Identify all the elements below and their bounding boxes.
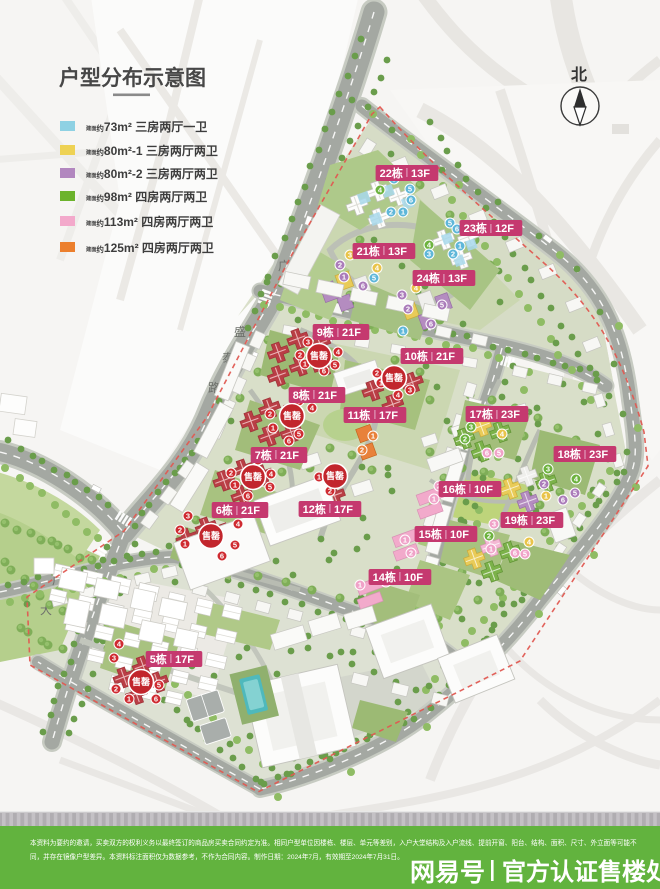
svg-text:售罄: 售罄 <box>201 530 220 541</box>
svg-text:10栋: 10栋 <box>405 349 428 363</box>
svg-text:1: 1 <box>127 695 131 704</box>
svg-text:21F: 21F <box>436 351 455 363</box>
svg-text:10F: 10F <box>450 529 469 541</box>
svg-text:2: 2 <box>229 469 233 478</box>
svg-text:10F: 10F <box>404 572 423 584</box>
svg-text:盛: 盛 <box>234 324 246 339</box>
svg-text:建面约98m² 四房两厅两卫: 建面约98m² 四房两厅两卫 <box>86 189 207 204</box>
svg-text:同，并存在镜像户型差异。本资料标注面积仅为数据参考，不作为合: 同，并存在镜像户型差异。本资料标注面积仅为数据参考，不作为合同内容。制作日期：2… <box>30 852 404 861</box>
svg-text:17F: 17F <box>175 654 194 666</box>
svg-text:2: 2 <box>338 261 342 270</box>
svg-text:1: 1 <box>489 545 493 554</box>
svg-text:6栋: 6栋 <box>216 503 233 517</box>
svg-text:12栋: 12栋 <box>303 502 326 516</box>
svg-text:12F: 12F <box>495 223 514 235</box>
svg-text:7栋: 7栋 <box>255 448 272 462</box>
svg-text:18栋: 18栋 <box>558 447 581 461</box>
svg-text:3: 3 <box>492 520 496 529</box>
svg-text:5: 5 <box>408 185 412 194</box>
svg-text:6: 6 <box>513 549 517 558</box>
svg-text:5: 5 <box>497 449 501 458</box>
svg-text:1: 1 <box>342 273 346 282</box>
svg-text:23F: 23F <box>501 409 520 421</box>
svg-text:21F: 21F <box>318 390 337 402</box>
svg-text:23F: 23F <box>536 515 555 527</box>
svg-text:1: 1 <box>358 581 362 590</box>
svg-text:3: 3 <box>427 250 431 259</box>
svg-text:2: 2 <box>114 685 118 694</box>
svg-text:21F: 21F <box>280 450 299 462</box>
svg-text:售罄: 售罄 <box>243 471 262 482</box>
svg-text:21F: 21F <box>241 505 260 517</box>
svg-text:建面约73m² 三房两厅一卫: 建面约73m² 三房两厅一卫 <box>86 119 207 134</box>
svg-text:3: 3 <box>408 386 412 395</box>
svg-text:建面约125m² 四房两厅两卫: 建面约125m² 四房两厅两卫 <box>86 240 214 255</box>
svg-text:14栋: 14栋 <box>373 570 396 584</box>
svg-text:6: 6 <box>361 282 365 291</box>
svg-text:3: 3 <box>546 465 550 474</box>
svg-text:17F: 17F <box>379 410 398 422</box>
svg-text:17栋: 17栋 <box>470 407 493 421</box>
svg-text:北: 北 <box>571 66 587 84</box>
svg-text:1: 1 <box>183 540 187 549</box>
svg-text:5: 5 <box>440 301 444 310</box>
svg-text:5: 5 <box>333 361 337 370</box>
svg-text:17F: 17F <box>334 504 353 516</box>
svg-text:1: 1 <box>401 327 405 336</box>
svg-text:21F: 21F <box>342 327 361 339</box>
svg-text:官方认证售楼处: 官方认证售楼处 <box>502 858 660 886</box>
svg-text:22栋: 22栋 <box>380 166 403 180</box>
svg-text:2: 2 <box>406 305 410 314</box>
svg-text:1: 1 <box>317 473 321 482</box>
svg-text:户型分布示意图: 户型分布示意图 <box>59 66 206 90</box>
svg-text:6: 6 <box>246 492 250 501</box>
svg-text:1: 1 <box>303 360 307 369</box>
svg-text:2: 2 <box>375 369 379 378</box>
svg-text:6: 6 <box>485 449 489 458</box>
svg-text:售罄: 售罄 <box>325 470 344 481</box>
svg-text:2: 2 <box>542 480 546 489</box>
svg-text:5: 5 <box>448 219 452 228</box>
svg-text:6: 6 <box>561 496 565 505</box>
svg-text:2: 2 <box>389 208 393 217</box>
svg-text:3: 3 <box>348 251 352 260</box>
svg-text:1: 1 <box>544 492 548 501</box>
svg-text:13F: 13F <box>411 168 430 180</box>
svg-text:1: 1 <box>401 208 405 217</box>
svg-text:23栋: 23栋 <box>464 221 487 235</box>
svg-text:本资料为要约的邀请，买卖双方的权利义务以最终签订的商品房买卖: 本资料为要约的邀请，买卖双方的权利义务以最终签订的商品房买卖合同约定为准。相同户… <box>30 838 637 847</box>
svg-text:2: 2 <box>409 549 413 558</box>
svg-text:24栋: 24栋 <box>417 271 440 285</box>
svg-text:售罄: 售罄 <box>282 410 301 421</box>
svg-text:售罄: 售罄 <box>309 350 328 361</box>
svg-text:2: 2 <box>487 532 491 541</box>
svg-text:13F: 13F <box>448 273 467 285</box>
svg-text:2: 2 <box>360 446 364 455</box>
svg-text:网易号: 网易号 <box>410 859 485 887</box>
svg-text:2: 2 <box>298 351 302 360</box>
svg-text:1: 1 <box>233 481 237 490</box>
svg-text:6: 6 <box>409 196 413 205</box>
svg-text:建面约80m²-1 三房两厅两卫: 建面约80m²-1 三房两厅两卫 <box>86 143 218 158</box>
svg-text:1: 1 <box>458 242 462 251</box>
svg-text:13F: 13F <box>388 246 407 258</box>
svg-text:6: 6 <box>154 695 158 704</box>
svg-text:1: 1 <box>432 495 436 504</box>
svg-text:3: 3 <box>186 512 190 521</box>
svg-text:5: 5 <box>573 489 577 498</box>
svg-text:5: 5 <box>268 483 272 492</box>
svg-text:2: 2 <box>178 526 182 535</box>
svg-text:5栋: 5栋 <box>150 652 167 666</box>
svg-text:1: 1 <box>403 536 407 545</box>
svg-text:建面约113m² 四房两厅两卫: 建面约113m² 四房两厅两卫 <box>86 214 213 229</box>
svg-text:6: 6 <box>429 320 433 329</box>
svg-text:21栋: 21栋 <box>357 244 380 258</box>
svg-text:售罄: 售罄 <box>131 676 150 687</box>
svg-text:3: 3 <box>306 338 310 347</box>
svg-text:5: 5 <box>157 681 161 690</box>
svg-text:1: 1 <box>271 424 275 433</box>
svg-text:6: 6 <box>455 225 459 234</box>
svg-text:6: 6 <box>220 552 224 561</box>
svg-text:11栋: 11栋 <box>348 408 371 422</box>
svg-text:3: 3 <box>469 423 473 432</box>
svg-text:5: 5 <box>297 430 301 439</box>
svg-text:5: 5 <box>523 550 527 559</box>
svg-text:3: 3 <box>112 654 116 663</box>
svg-text:9栋: 9栋 <box>317 325 334 339</box>
svg-text:建面约80m²-2 三房两厅两卫: 建面约80m²-2 三房两厅两卫 <box>86 166 218 181</box>
svg-text:19栋: 19栋 <box>505 513 528 527</box>
svg-text:2: 2 <box>268 410 272 419</box>
svg-text:5: 5 <box>233 541 237 550</box>
svg-text:2: 2 <box>451 250 455 259</box>
svg-text:16栋: 16栋 <box>443 482 466 496</box>
svg-text:1: 1 <box>371 432 375 441</box>
svg-text:15栋: 15栋 <box>419 527 442 541</box>
svg-text:售罄: 售罄 <box>384 372 403 383</box>
svg-text:10F: 10F <box>474 484 493 496</box>
svg-text:23F: 23F <box>589 449 608 461</box>
svg-text:2: 2 <box>463 435 467 444</box>
svg-text:5: 5 <box>372 274 376 283</box>
svg-text:6: 6 <box>287 437 291 446</box>
svg-text:8栋: 8栋 <box>293 388 310 402</box>
svg-text:3: 3 <box>400 291 404 300</box>
